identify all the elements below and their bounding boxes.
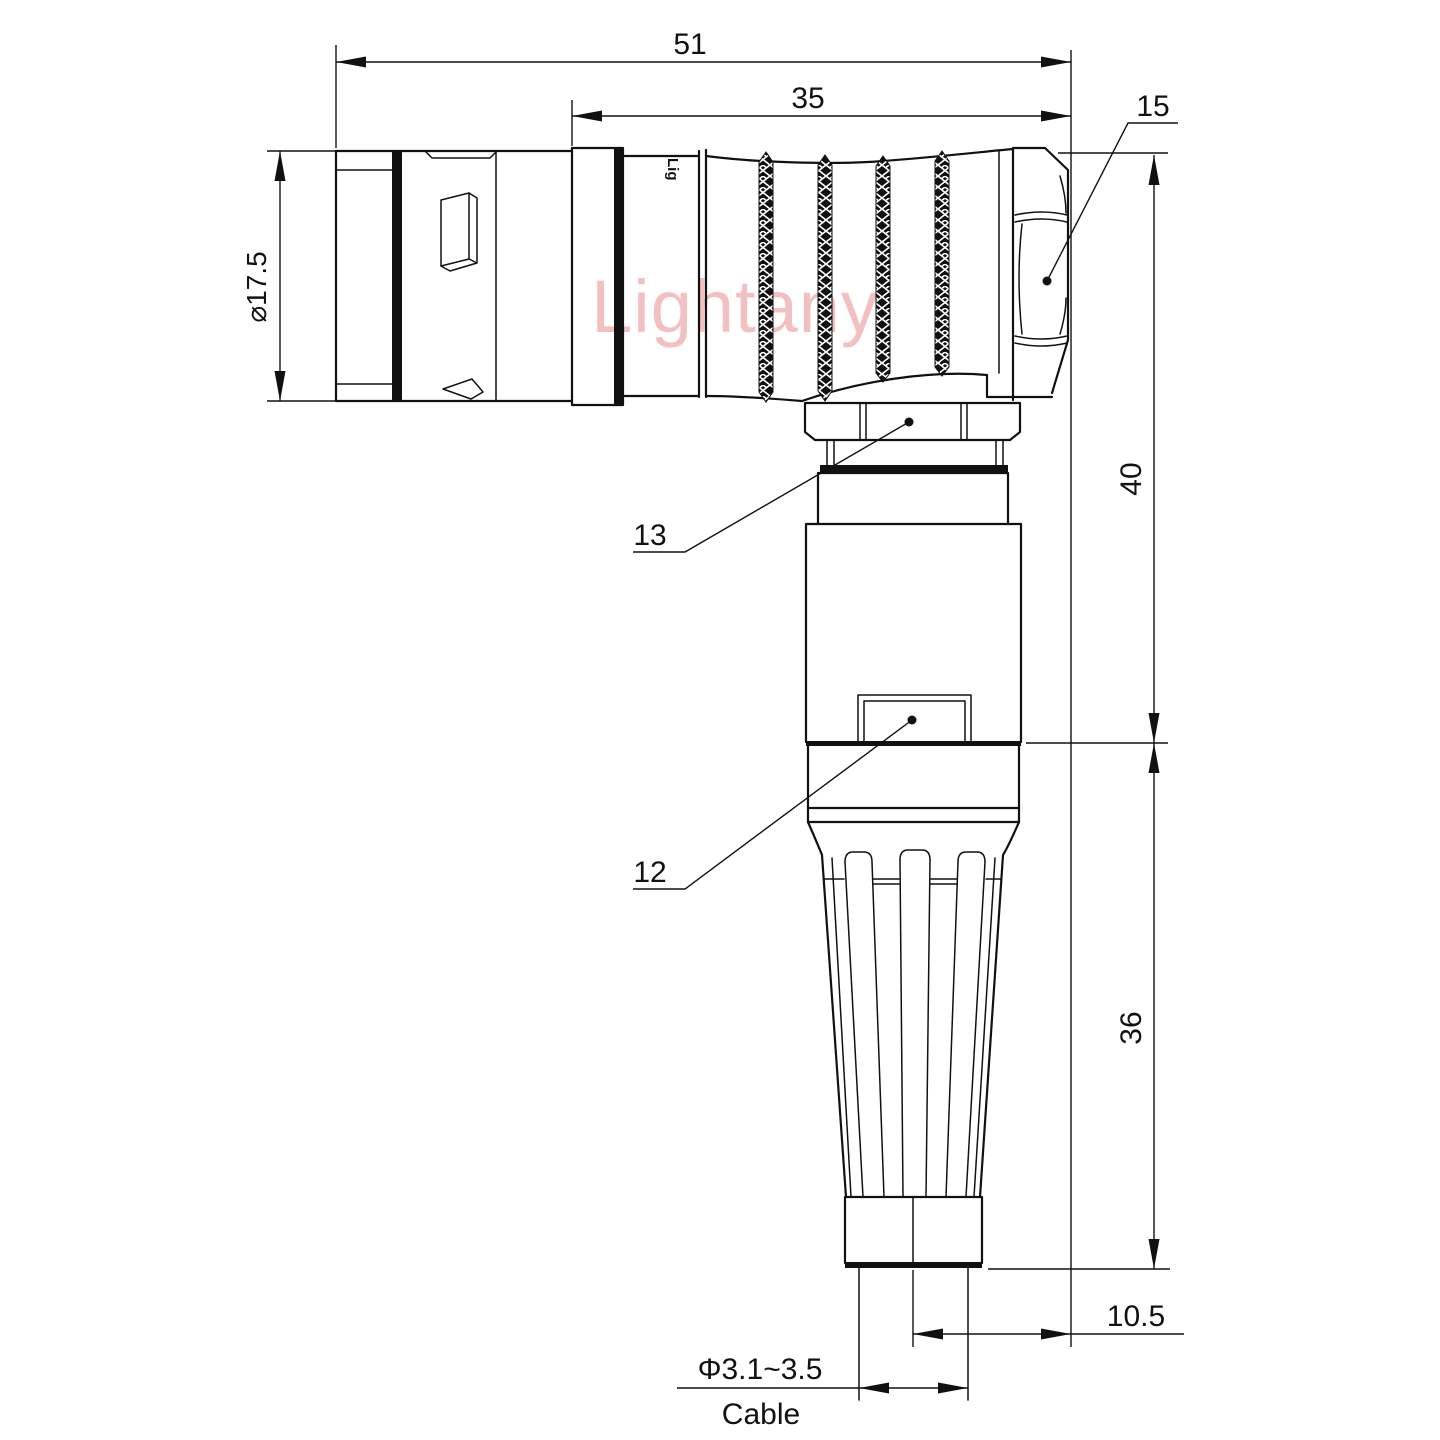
ref-13-label: 13 <box>633 519 666 552</box>
hex-nut <box>1013 148 1068 400</box>
dim-cable-diameter-label: Φ3.1~3.5 <box>698 1353 823 1386</box>
dim-36-label: 36 <box>1115 1011 1148 1044</box>
watermark-text: Lightany <box>591 265 879 348</box>
dimension-cable-offset: 10.5 <box>913 1270 1184 1347</box>
strain-relief-boot <box>808 746 1019 1197</box>
dim-17-5-label: ⌀17.5 <box>241 251 272 322</box>
knurl-band <box>818 155 832 401</box>
knurl-band <box>876 156 890 382</box>
dimension-overall-length: 51 <box>336 28 1071 148</box>
dimension-plug-diameter: ⌀17.5 <box>241 151 336 401</box>
engraved-logo-text: Lig <box>664 158 681 181</box>
ref-15-label: 15 <box>1136 90 1169 123</box>
dimension-cable-diameter: Φ3.1~3.5 Cable <box>677 1353 968 1431</box>
leader-collet-nut-13: 13 <box>633 418 914 553</box>
knurl-band <box>759 152 773 402</box>
dim-10-5-label: 10.5 <box>1107 1300 1165 1333</box>
dimension-rear-length: 35 <box>572 82 1071 146</box>
technical-drawing-svg: Lightany Lig <box>0 0 1440 1440</box>
cable-label: Cable <box>722 1398 800 1431</box>
dimension-height-upper: 40 <box>1026 153 1168 1269</box>
ref-12-label: 12 <box>633 856 666 889</box>
dim-40-label: 40 <box>1115 462 1148 495</box>
boot-end-cap <box>845 1197 982 1268</box>
drawing-canvas: Lightany Lig <box>0 0 1440 1440</box>
main-body <box>806 524 1021 746</box>
dim-35-label: 35 <box>791 82 824 115</box>
knurl-band <box>935 151 949 376</box>
dim-51-label: 51 <box>673 28 706 61</box>
plug-front-shell <box>336 151 572 401</box>
upper-cylinder <box>818 473 1008 524</box>
